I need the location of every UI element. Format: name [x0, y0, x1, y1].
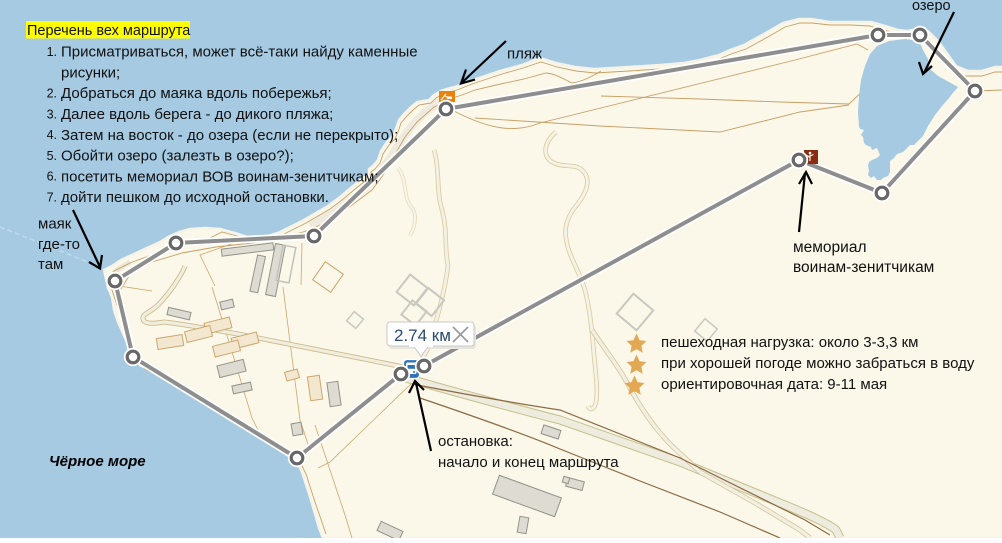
svg-text:7.: 7.: [47, 191, 57, 205]
svg-text:1.: 1.: [47, 45, 57, 59]
svg-text:Затем на восток - до озера (ес: Затем на восток - до озера (если не пере…: [61, 127, 398, 144]
svg-text:озеро: озеро: [912, 0, 951, 14]
svg-text:2.74 км: 2.74 км: [394, 326, 451, 345]
svg-text:воинам-зенитчикам: воинам-зенитчикам: [793, 259, 934, 276]
svg-text:там: там: [38, 256, 63, 273]
svg-text:4.: 4.: [47, 128, 57, 142]
svg-text:Обойти озеро (залезть в озеро?: Обойти озеро (залезть в озеро?);: [61, 148, 294, 165]
svg-text:посетить мемориал ВОВ воинам-з: посетить мемориал ВОВ воинам-зенитчикам;: [61, 168, 379, 185]
svg-text:начало и конец маршрута: начало и конец маршрута: [438, 454, 619, 471]
svg-text:дойти пешком до исходной остан: дойти пешком до исходной остановки.: [61, 189, 329, 206]
svg-text:Перечень вех маршрута: Перечень вех маршрута: [27, 23, 191, 39]
svg-text:5.: 5.: [47, 149, 57, 163]
svg-text:рисунки;: рисунки;: [61, 64, 120, 81]
svg-text:пешеходная нагрузка: около 3-3: пешеходная нагрузка: около 3-3,3 км: [661, 334, 919, 351]
svg-text:где-то: где-то: [38, 236, 80, 253]
svg-text:Далее вдоль берега - до дикого: Далее вдоль берега - до дикого пляжа;: [61, 106, 333, 123]
svg-text:мемориал: мемориал: [793, 239, 867, 256]
svg-text:маяк: маяк: [38, 216, 72, 233]
svg-text:пляж: пляж: [507, 46, 542, 63]
svg-text:при хорошей погоде можно забра: при хорошей погоде можно забраться в вод…: [661, 355, 975, 372]
svg-text:Чёрное море: Чёрное море: [49, 453, 146, 470]
svg-text:2.: 2.: [47, 87, 57, 101]
svg-text:6.: 6.: [47, 170, 57, 184]
svg-text:ориентировочная дата: 9-11 мая: ориентировочная дата: 9-11 мая: [661, 376, 887, 393]
svg-text:Добраться до маяка вдоль побер: Добраться до маяка вдоль побережья;: [61, 85, 332, 102]
svg-text:3.: 3.: [47, 107, 57, 121]
svg-text:остановка:: остановка:: [438, 433, 513, 450]
svg-text:Присматриваться, может всё-так: Присматриваться, может всё-таки найду ка…: [61, 44, 418, 61]
